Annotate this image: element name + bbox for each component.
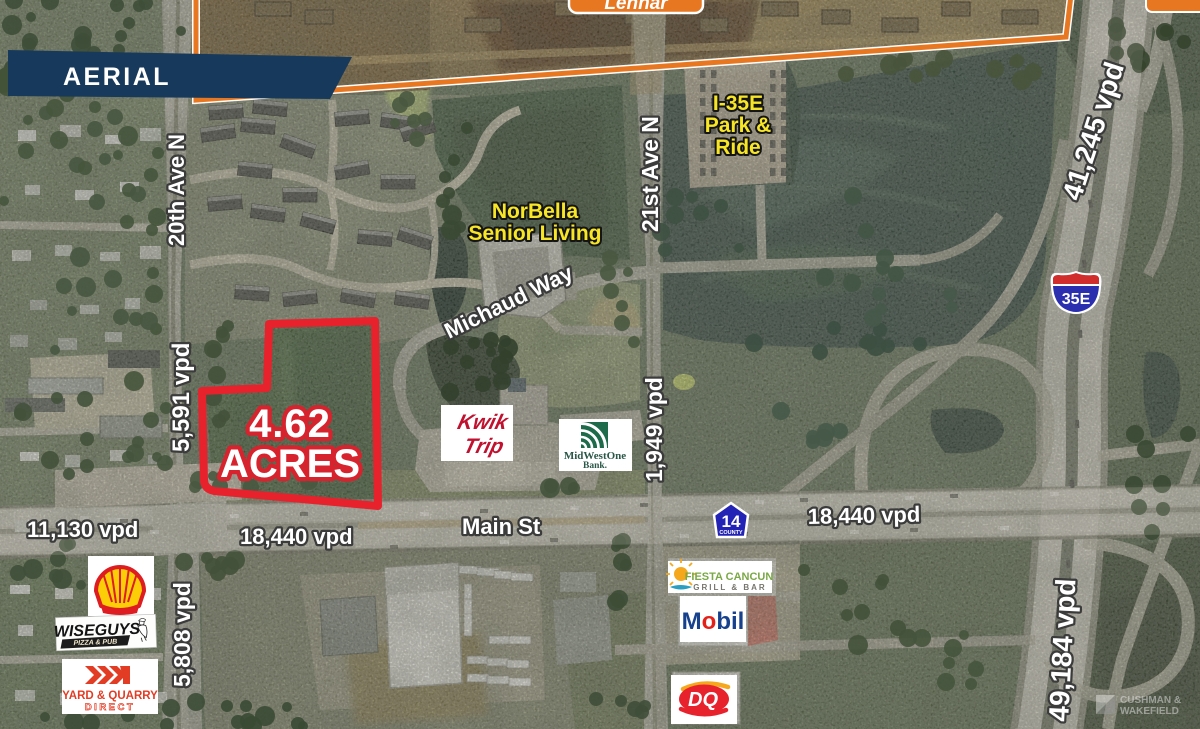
svg-text:NorBella: NorBella (492, 200, 579, 223)
svg-text:18,440 vpd: 18,440 vpd (240, 524, 353, 549)
svg-text:GRILL & BAR: GRILL & BAR (693, 583, 766, 592)
svg-text:11,130 vpd: 11,130 vpd (27, 517, 138, 542)
svg-text:Bank.: Bank. (583, 461, 607, 471)
svg-text:CUSHMAN &: CUSHMAN & (1120, 695, 1181, 706)
svg-text:4.62: 4.62 (249, 402, 331, 446)
svg-text:14: 14 (722, 512, 741, 531)
svg-text:5,591 vpd: 5,591 vpd (168, 343, 195, 452)
svg-text:DIRECT: DIRECT (85, 702, 135, 713)
svg-text:Park &: Park & (705, 114, 772, 137)
svg-text:COUNTY: COUNTY (719, 530, 743, 536)
svg-text:21st Ave N: 21st Ave N (637, 116, 663, 232)
svg-text:ACRES: ACRES (220, 442, 360, 486)
svg-text:Mobil: Mobil (682, 608, 745, 635)
svg-text:Trip: Trip (461, 434, 506, 458)
svg-text:18,440 vpd: 18,440 vpd (808, 502, 921, 529)
svg-text:YARD & QUARRY: YARD & QUARRY (62, 690, 158, 702)
svg-text:AERIAL: AERIAL (63, 63, 171, 91)
svg-text:I-35E: I-35E (713, 92, 763, 115)
svg-text:FIESTA CANCUN: FIESTA CANCUN (685, 571, 774, 583)
svg-text:1,949 vpd: 1,949 vpd (641, 377, 667, 482)
svg-text:20th Ave N: 20th Ave N (164, 134, 189, 246)
svg-text:WAKEFIELD: WAKEFIELD (1120, 706, 1179, 717)
svg-text:5,808 vpd: 5,808 vpd (169, 582, 195, 687)
svg-text:Ride: Ride (715, 136, 761, 159)
svg-text:Main St: Main St (462, 514, 541, 539)
svg-text:35E: 35E (1062, 291, 1091, 308)
svg-text:Lennar: Lennar (604, 0, 669, 14)
svg-text:Senior Living: Senior Living (468, 222, 601, 245)
svg-text:DQ: DQ (688, 689, 718, 711)
svg-text:Kwik: Kwik (455, 410, 511, 434)
